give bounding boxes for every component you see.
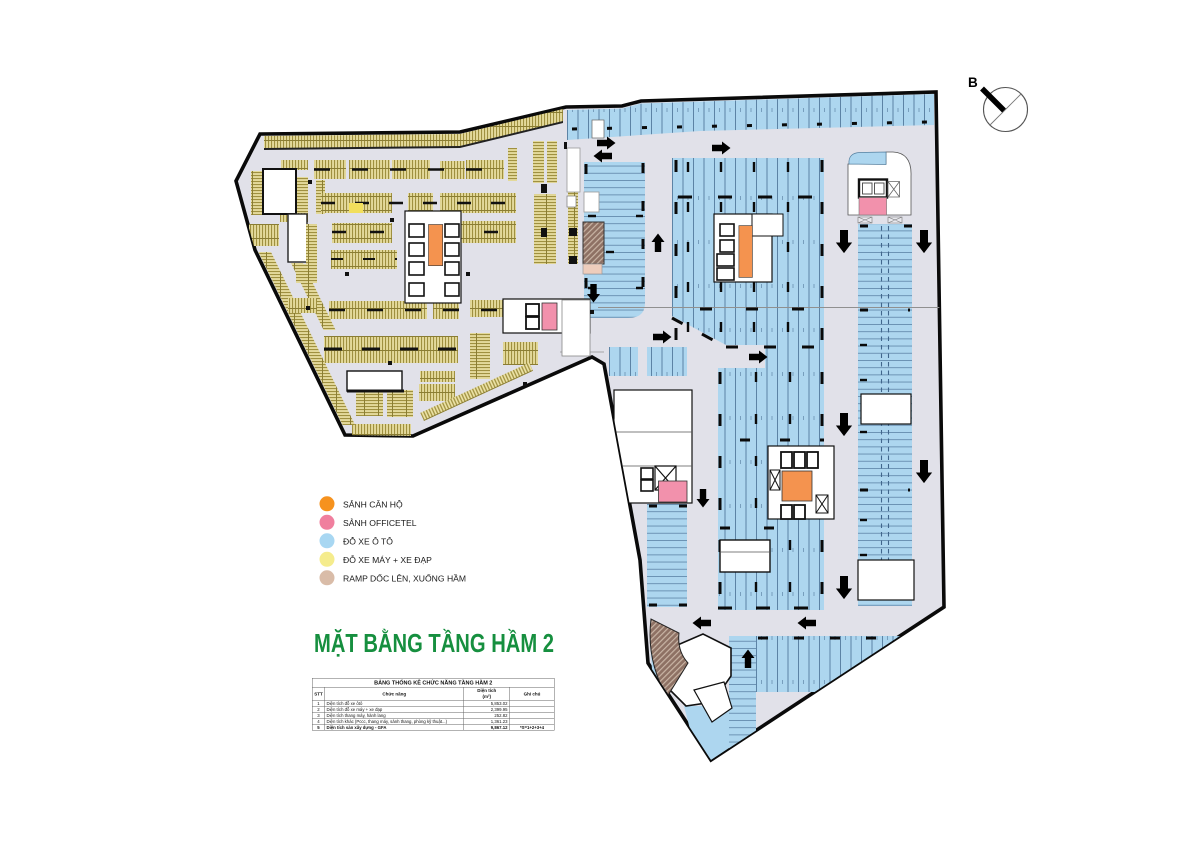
svg-text:ĐỖ XE MÁY + XE ĐẠP: ĐỖ XE MÁY + XE ĐẠP [343,554,432,565]
svg-text:SẢNH OFFICETEL: SẢNH OFFICETEL [343,517,417,528]
svg-text:B: B [968,75,978,90]
svg-text:RAMP DỐC LÊN, XUỐNG HẦM: RAMP DỐC LÊN, XUỐNG HẦM [343,572,466,583]
svg-text:ĐỖ XE Ô TÔ: ĐỖ XE Ô TÔ [343,535,393,546]
svg-text:SẢNH CĂN HỘ: SẢNH CĂN HỘ [343,498,403,509]
svg-text:MẶT BẰNG TẦNG HẦM 2: MẶT BẰNG TẦNG HẦM 2 [314,628,554,658]
